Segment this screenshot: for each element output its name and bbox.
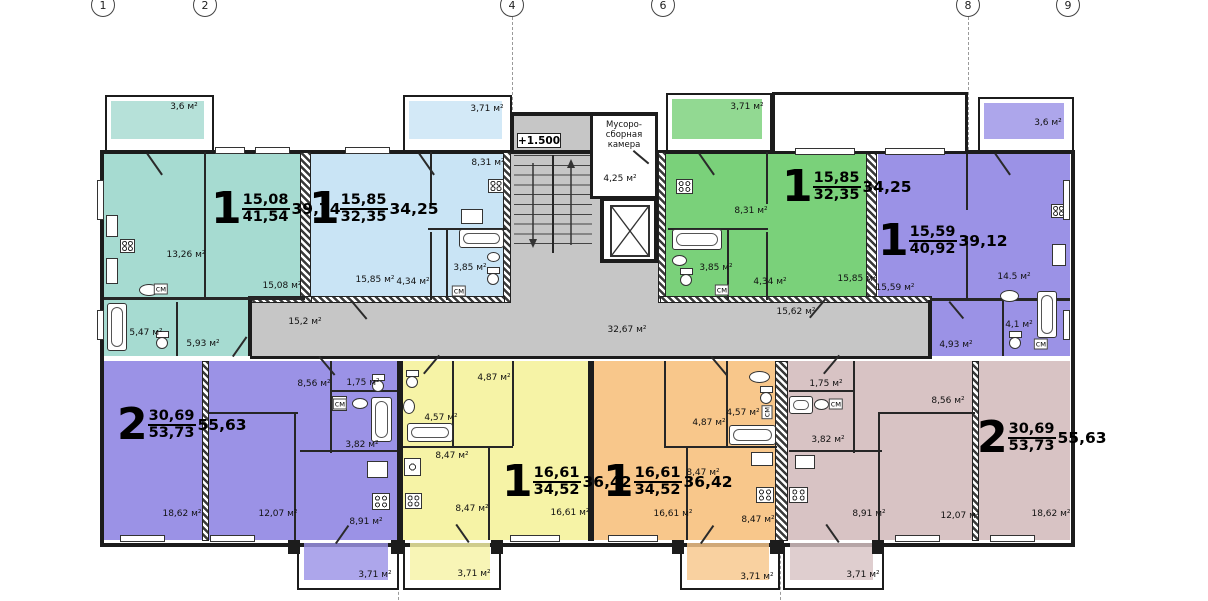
bathtub-icon [789, 396, 813, 414]
partition [512, 361, 514, 446]
partition [766, 232, 768, 300]
wall [588, 361, 594, 541]
bathtub-icon [672, 229, 722, 250]
window [885, 148, 945, 155]
wall-hatched [972, 361, 979, 541]
balcony-green [666, 93, 772, 154]
bathtub-icon [371, 397, 392, 442]
axis-bubble: 6 [651, 0, 675, 17]
sink-icon [403, 399, 415, 414]
sink-icon [1000, 290, 1019, 302]
stove-icon [120, 239, 135, 253]
toilet-icon [1008, 331, 1021, 349]
wall [248, 300, 252, 356]
balcony-purple-right [978, 97, 1074, 154]
partition [176, 302, 178, 356]
partition [488, 448, 490, 540]
grid-line [968, 17, 969, 150]
partition [430, 152, 432, 204]
window [990, 535, 1035, 542]
garbage-chamber-label: Мусоро- сборная камера [594, 120, 654, 150]
window [795, 148, 855, 155]
window [608, 535, 658, 542]
sink-icon [814, 399, 829, 410]
balcony-blue [403, 95, 512, 154]
floor-plan: +1.500 Мусоро- сборная камера [0, 0, 1208, 601]
window [215, 147, 245, 154]
level-mark: +1.500 [517, 133, 561, 148]
balcony-purple-bottom [297, 543, 399, 590]
apartment-fill-purple-right [878, 152, 1070, 300]
axis-bubble: 9 [1056, 0, 1080, 17]
wall-hatched [311, 296, 505, 303]
apartment-fill-yellow [403, 361, 588, 540]
partition [878, 412, 975, 414]
garbage-line: камера [608, 140, 641, 150]
partition [446, 230, 448, 300]
bathtub-icon [1037, 291, 1057, 338]
toilet-icon [486, 267, 499, 285]
partition [789, 390, 853, 392]
balcony-pier [672, 540, 684, 554]
stove-icon [405, 493, 422, 509]
partition [430, 232, 432, 300]
window [97, 310, 104, 340]
corridor-fill [250, 300, 930, 356]
window [1063, 310, 1070, 340]
vent-shaft [658, 152, 666, 303]
bathtub-icon [729, 425, 776, 445]
stair-arrows-icon [514, 155, 592, 253]
partition [853, 361, 855, 453]
partition [294, 414, 296, 540]
sink-icon [139, 284, 159, 296]
bathtub-icon [459, 229, 504, 248]
stove-icon [756, 487, 774, 503]
partition [966, 236, 968, 300]
partition [208, 412, 298, 414]
partition [403, 446, 513, 448]
partition [1002, 301, 1004, 356]
elevator-icon [610, 205, 650, 257]
partition [332, 390, 397, 392]
sink-icon [749, 371, 770, 383]
tv-icon [367, 461, 388, 478]
balcony-pier [872, 540, 884, 554]
tv-icon [751, 452, 773, 466]
balcony-pier [491, 540, 503, 554]
axis-bubble: 4 [500, 0, 524, 17]
washer-icon [332, 396, 347, 411]
balcony-pier [770, 540, 784, 554]
toilet-icon [679, 268, 692, 286]
bathtub-icon [107, 303, 127, 351]
stove-icon [372, 493, 390, 510]
wall-hatched [866, 152, 877, 300]
wall [397, 361, 403, 541]
stove-icon [676, 179, 693, 194]
balcony-orange [680, 543, 780, 590]
partition [204, 152, 206, 297]
window [1063, 180, 1070, 220]
wall-hatched [300, 152, 311, 300]
partition [966, 152, 968, 210]
counter-icon [795, 455, 815, 469]
partition [300, 450, 397, 452]
vent-shaft [775, 361, 788, 541]
partition [686, 448, 688, 540]
partition [664, 361, 666, 446]
tv-icon [461, 209, 483, 224]
balcony-teal [105, 95, 214, 154]
toilet-icon [759, 386, 772, 402]
stove-icon [488, 179, 504, 193]
balcony-mauve [783, 543, 884, 590]
washer-icon [404, 458, 421, 476]
wall [510, 112, 514, 152]
window [97, 180, 104, 220]
wall-hatched [660, 296, 932, 303]
toilet-icon [371, 374, 384, 391]
sink-icon [487, 252, 500, 262]
partition [104, 297, 305, 300]
window [255, 147, 290, 154]
window [210, 535, 255, 542]
window [120, 535, 165, 542]
toilet-icon [405, 370, 418, 387]
toilet-icon [155, 331, 168, 350]
apartment-fill-orange [594, 361, 775, 540]
garbage-line: Мусоро- [606, 120, 642, 130]
unassigned-room [772, 92, 968, 154]
apartment-fill-blue [311, 152, 505, 300]
partition [664, 446, 777, 448]
sink-icon [352, 398, 368, 409]
level-mark-label: +1.500 [518, 135, 560, 147]
balcony-pier [391, 540, 405, 554]
garbage-line: сборная [606, 130, 642, 140]
window [895, 535, 940, 542]
balcony-yellow [403, 543, 501, 590]
window [345, 147, 390, 154]
axis-bubble: 2 [193, 0, 217, 17]
partition [727, 230, 729, 300]
balcony-pier [288, 540, 300, 554]
bathtub-icon [407, 423, 453, 442]
wall [928, 300, 932, 356]
counter-icon [106, 258, 118, 284]
axis-bubble: 8 [956, 0, 980, 17]
window [510, 535, 560, 542]
sink-icon [672, 255, 687, 266]
counter-icon [1052, 244, 1066, 266]
counter-icon [106, 215, 118, 237]
wall-hatched [202, 361, 209, 541]
partition [766, 152, 768, 204]
stove-icon [789, 487, 808, 503]
partition [878, 414, 880, 540]
axis-bubble: 1 [91, 0, 115, 17]
wall [250, 356, 932, 359]
partition [789, 450, 882, 452]
